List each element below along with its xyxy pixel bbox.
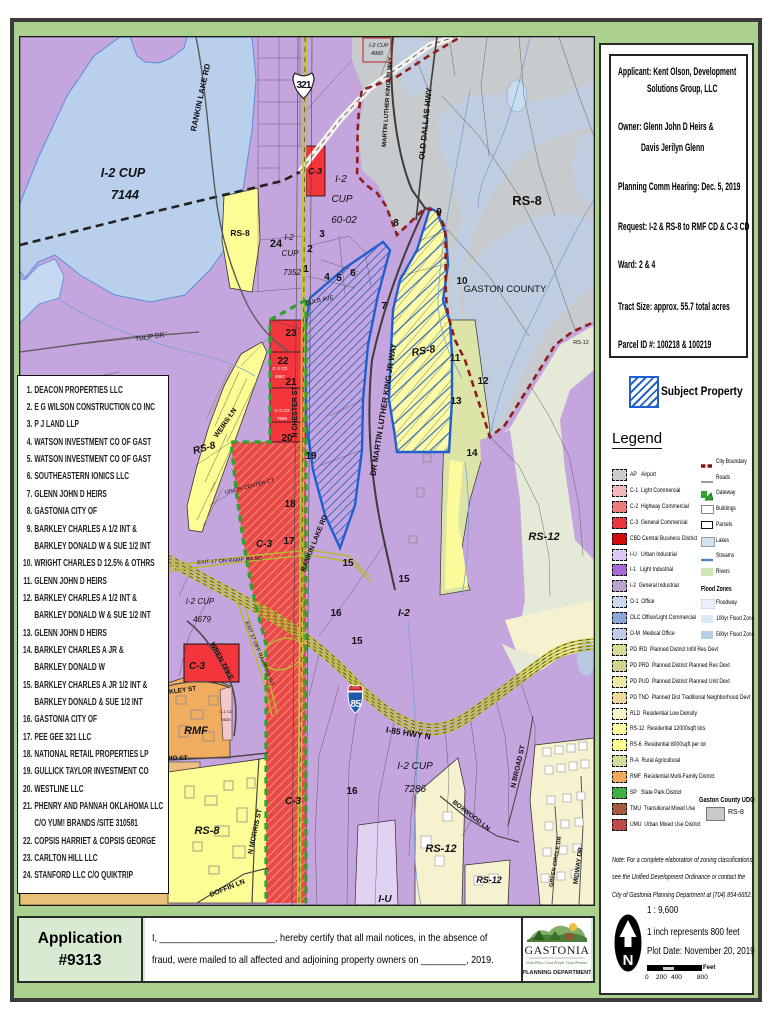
- svg-text:GASTON COUNTY: GASTON COUNTY: [464, 284, 547, 295]
- svg-text:I-2 CUP: I-2 CUP: [101, 166, 146, 180]
- svg-text:C-3 CD: C-3 CD: [274, 408, 290, 413]
- svg-text:85: 85: [350, 699, 361, 710]
- svg-text:3: 3: [319, 229, 325, 240]
- svg-text:12: 12: [477, 376, 489, 387]
- svg-text:16: 16: [346, 786, 358, 797]
- svg-text:I-U: I-U: [378, 894, 392, 905]
- svg-text:4679: 4679: [193, 615, 211, 624]
- svg-text:Great Place. Great People. Gre: Great Place. Great People. Great Promise…: [526, 961, 588, 965]
- svg-text:7144: 7144: [111, 188, 139, 202]
- svg-text:17: 17: [283, 536, 295, 547]
- svg-text:PLANNING DEPARTMENT: PLANNING DEPARTMENT: [523, 970, 591, 976]
- svg-text:C-3: C-3: [308, 166, 322, 176]
- svg-text:N CHESTER ST: N CHESTER ST: [292, 386, 299, 438]
- svg-text:5: 5: [336, 273, 342, 284]
- svg-text:321: 321: [297, 80, 312, 91]
- svg-text:15: 15: [398, 574, 410, 585]
- svg-text:60-02: 60-02: [331, 215, 357, 226]
- svg-text:2: 2: [307, 244, 313, 255]
- svg-text:7566: 7566: [277, 416, 288, 421]
- svg-text:1: 1: [303, 264, 309, 275]
- svg-text:RS-8: RS-8: [194, 825, 220, 837]
- svg-text:15: 15: [342, 558, 354, 569]
- svg-text:11: 11: [450, 353, 461, 364]
- svg-text:4667: 4667: [275, 374, 286, 379]
- svg-text:I-2 CUP: I-2 CUP: [369, 43, 389, 49]
- svg-text:7: 7: [381, 301, 387, 312]
- svg-text:C-3: C-3: [285, 796, 302, 807]
- svg-text:RS-12: RS-12: [476, 875, 502, 885]
- svg-text:RS-12: RS-12: [528, 531, 559, 543]
- svg-text:I-2: I-2: [335, 174, 347, 185]
- svg-text:C-3 CD: C-3 CD: [272, 366, 288, 371]
- svg-text:6: 6: [350, 268, 356, 279]
- svg-text:19: 19: [305, 451, 317, 462]
- svg-text:7286: 7286: [404, 784, 427, 795]
- svg-text:15: 15: [351, 636, 363, 647]
- svg-text:N: N: [623, 952, 634, 969]
- svg-text:I-2 CUP: I-2 CUP: [397, 761, 433, 772]
- svg-text:7352: 7352: [283, 268, 301, 277]
- svg-text:8: 8: [393, 218, 399, 229]
- svg-text:I-2: I-2: [284, 233, 294, 242]
- svg-text:C-3: C-3: [256, 539, 273, 550]
- svg-text:13: 13: [450, 396, 462, 407]
- svg-text:RMF: RMF: [184, 725, 208, 737]
- svg-text:4: 4: [324, 272, 330, 283]
- svg-text:18: 18: [284, 499, 296, 510]
- svg-text:16: 16: [330, 608, 342, 619]
- svg-text:RS-8: RS-8: [512, 193, 542, 208]
- svg-text:RS-12: RS-12: [573, 340, 589, 346]
- svg-text:8633: 8633: [222, 717, 232, 722]
- svg-text:I-2: I-2: [398, 608, 410, 619]
- svg-text:14: 14: [466, 448, 478, 459]
- svg-text:9: 9: [436, 207, 442, 218]
- svg-text:RS-12: RS-12: [425, 843, 456, 855]
- svg-text:4960: 4960: [371, 51, 384, 57]
- svg-text:C-1 CD: C-1 CD: [219, 709, 232, 714]
- svg-text:CUP: CUP: [331, 194, 352, 205]
- svg-text:23: 23: [285, 328, 297, 339]
- svg-text:CUP: CUP: [282, 249, 300, 258]
- svg-text:I-2 CUP: I-2 CUP: [186, 597, 215, 606]
- svg-text:C-3: C-3: [189, 661, 206, 672]
- svg-text:GASTONIA: GASTONIA: [524, 943, 589, 957]
- svg-text:RS-8: RS-8: [230, 228, 250, 238]
